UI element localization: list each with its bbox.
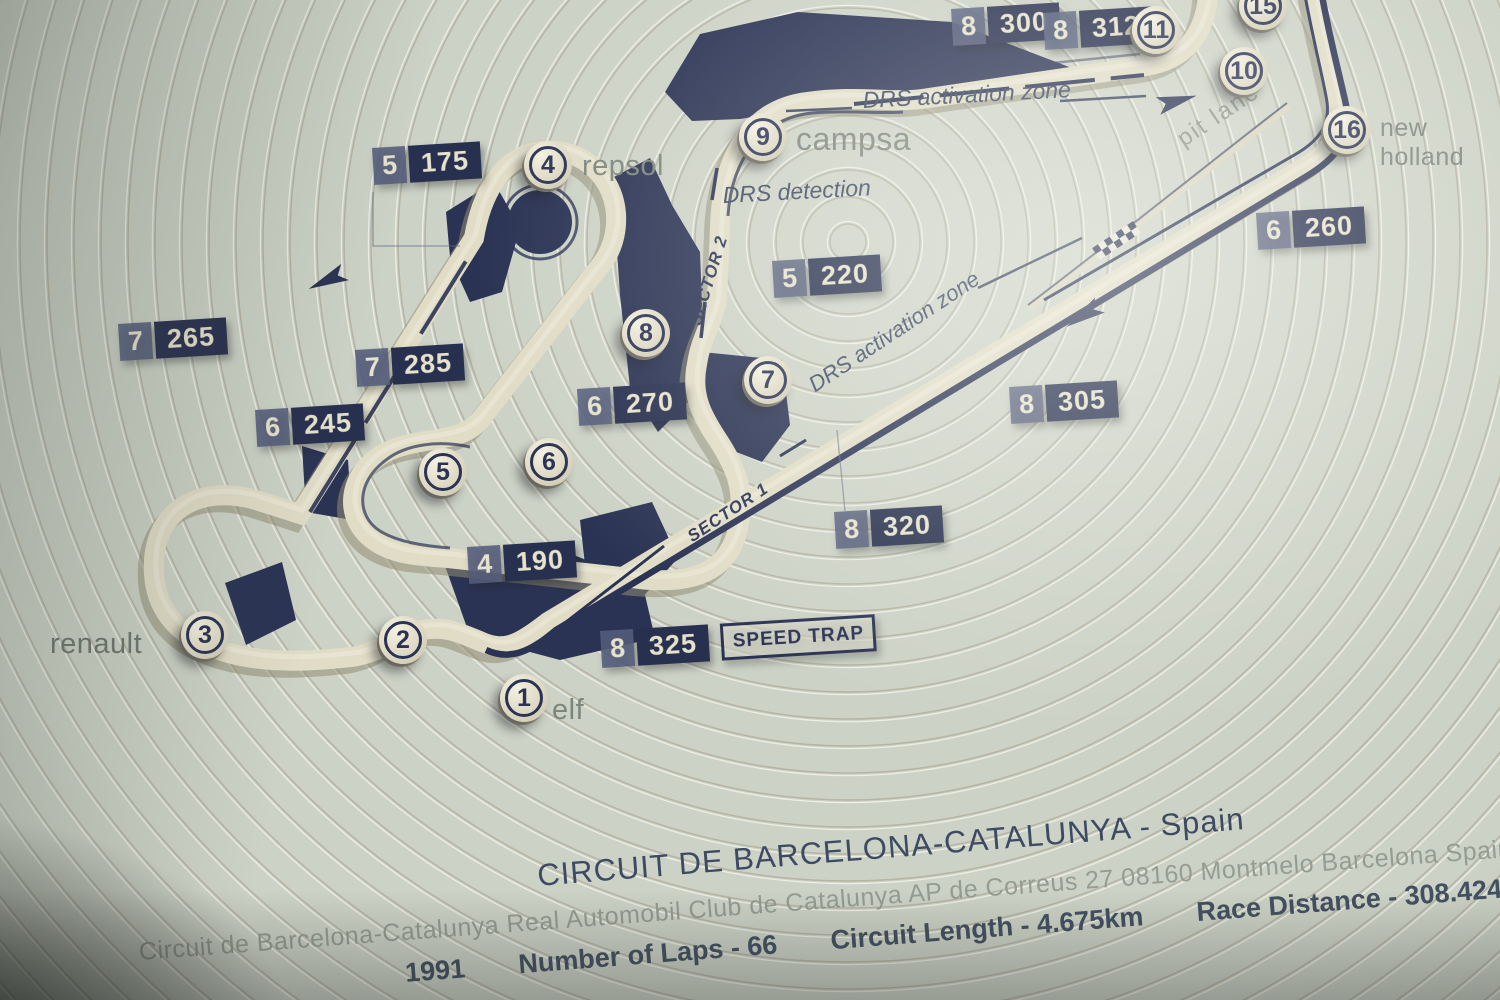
speed-value: 245 [291, 403, 365, 444]
corner-number: 2 [396, 626, 410, 655]
gear-value: 5 [772, 259, 807, 298]
gear-value: 7 [355, 348, 390, 387]
corner-marker-16: 16 [1323, 106, 1371, 154]
speed-label-t9: 5 220 [772, 254, 882, 298]
corner-number: 5 [436, 458, 450, 487]
corner-marker-9: 9 [739, 113, 787, 161]
speed-label-t5: 6 245 [255, 403, 365, 447]
corner-number: 10 [1230, 57, 1258, 86]
speed-value: 260 [1292, 206, 1366, 247]
speed-label-t3: 7 265 [118, 317, 228, 361]
speed-label-straight-a: 8 305 [1009, 380, 1119, 424]
corner-name-new-holland: new holland [1380, 114, 1500, 172]
track-map-print: 5 175 8 300 8 312 6 260 7 265 7 285 6 27… [0, 0, 1500, 1000]
speed-label-straight-b: 8 320 [834, 505, 944, 549]
gear-value: 8 [951, 7, 986, 46]
corner-name-repsol: repsol [582, 150, 664, 183]
corner-marker-2: 2 [379, 616, 427, 664]
gear-value: 4 [467, 545, 502, 584]
corner-number: 4 [541, 151, 555, 180]
gear-value: 7 [118, 322, 153, 361]
corner-number: 6 [542, 448, 556, 477]
gear-value: 5 [372, 146, 407, 185]
corner-number: 9 [756, 123, 770, 152]
speed-label-t4-approach: 7 285 [355, 343, 465, 387]
speed-label-t1: 4 190 [467, 540, 577, 584]
corner-marker-4: 4 [524, 141, 572, 189]
speed-value: 270 [613, 382, 687, 423]
corner-name-elf: elf [552, 694, 584, 727]
speed-value: 305 [1045, 380, 1119, 421]
corner-marker-1: 1 [500, 674, 548, 722]
gear-value: 8 [1009, 385, 1044, 424]
corner-marker-11: 11 [1132, 6, 1180, 54]
corner-marker-10: 10 [1220, 47, 1268, 95]
corner-marker-5: 5 [419, 448, 467, 496]
speed-value: 190 [503, 540, 577, 581]
speed-value: 265 [154, 317, 228, 358]
speed-label-t16: 6 260 [1256, 206, 1366, 250]
corner-marker-8: 8 [622, 309, 670, 357]
speed-value: 220 [808, 254, 882, 295]
corner-number: 15 [1249, 0, 1277, 21]
gear-value: 8 [1043, 11, 1078, 50]
speed-value: 325 [636, 624, 710, 665]
corner-number: 8 [639, 319, 653, 348]
corner-marker-7: 7 [744, 356, 792, 404]
corner-number: 7 [761, 366, 775, 395]
speed-value: 285 [391, 343, 465, 384]
gear-value: 8 [834, 510, 869, 549]
corner-number: 3 [198, 621, 212, 650]
corner-marker-3: 3 [181, 611, 229, 659]
corner-marker-6: 6 [525, 438, 573, 486]
direction-arrow-icon [1156, 87, 1199, 115]
corner-number: 16 [1333, 116, 1361, 145]
gear-value: 6 [255, 408, 290, 447]
gear-value: 6 [577, 387, 612, 426]
corner-name-campsa: campsa [796, 121, 911, 158]
speed-value: 175 [408, 141, 482, 182]
speed-label-t7: 6 270 [577, 382, 687, 426]
speed-label-t4: 5 175 [372, 141, 482, 185]
checkered-flag-icon [1092, 221, 1141, 260]
corner-number: 1 [517, 684, 531, 713]
gear-value: 6 [1256, 211, 1291, 250]
corner-number: 11 [1143, 16, 1169, 45]
corner-name-renault: renault [50, 628, 142, 661]
first-grand-prix-year: 1991 [404, 953, 466, 988]
gear-value: 8 [600, 629, 635, 668]
direction-arrow-icon [305, 264, 349, 297]
speed-value: 320 [870, 505, 944, 546]
